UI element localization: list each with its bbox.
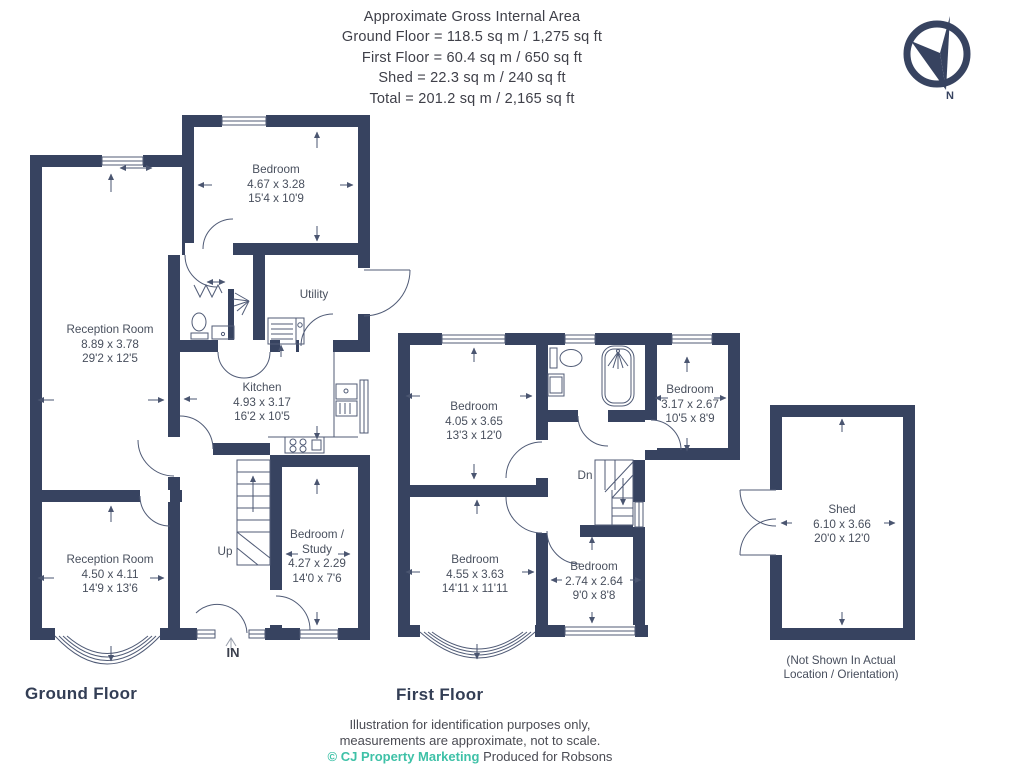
- stairs-dn-label: Dn: [578, 469, 593, 482]
- footer: Illustration for identification purposes…: [270, 717, 670, 764]
- area-summary-title: Approximate Gross Internal Area: [272, 7, 672, 27]
- shower-icon: [608, 350, 628, 370]
- compass-north-label: N: [946, 90, 954, 102]
- credit-text: Produced for Robsons: [483, 749, 612, 764]
- area-summary-first: First Floor = 60.4 sq m / 650 sq ft: [272, 48, 672, 68]
- first-floor-title: First Floor: [396, 685, 483, 705]
- ground-floor-title: Ground Floor: [25, 684, 137, 704]
- room-label-bedroom-gf: Bedroom 4.67 x 3.28 15'4 x 10'9: [247, 163, 305, 207]
- shed-doors: [740, 490, 776, 555]
- ground-floor-stairs: [237, 460, 270, 565]
- room-label-bedroom-study: Bedroom / Study 4.27 x 2.29 14'0 x 7'6: [277, 528, 357, 586]
- area-summary-shed: Shed = 22.3 sq m / 240 sq ft: [272, 68, 672, 88]
- ground-floor-bay-window: [55, 636, 160, 664]
- credit-line: © CJ Property Marketing Produced for Rob…: [270, 749, 670, 765]
- first-floor-stairs: [595, 460, 633, 525]
- first-floor-fixtures: [548, 346, 634, 406]
- compass-icon: [907, 16, 967, 90]
- room-label-utility: Utility: [300, 288, 329, 303]
- entrance-in-label: IN: [227, 645, 240, 660]
- hob-icon: [285, 437, 324, 453]
- disclaimer-line-1: Illustration for identification purposes…: [270, 717, 670, 733]
- floorplan-drawing: [0, 0, 1024, 768]
- area-summary: Approximate Gross Internal Area Ground F…: [272, 7, 672, 109]
- basin-icon: [548, 374, 564, 396]
- disclaimer-line-2: measurements are approximate, not to sca…: [270, 733, 670, 749]
- toilet-icon: [550, 348, 582, 368]
- radiator-icon: [194, 285, 222, 297]
- area-summary-ground: Ground Floor = 118.5 sq m / 1,275 sq ft: [272, 27, 672, 47]
- area-summary-total: Total = 201.2 sq m / 2,165 sq ft: [272, 89, 672, 109]
- shower-icon: [233, 293, 249, 315]
- credit-brand: © CJ Property Marketing: [328, 749, 480, 764]
- room-label-shed: Shed 6.10 x 3.66 20'0 x 12'0: [813, 503, 871, 547]
- room-label-reception-top: Reception Room 8.89 x 3.78 29'2 x 12'5: [66, 323, 153, 367]
- sink-icon: [336, 384, 357, 416]
- room-label-reception-bottom: Reception Room 4.50 x 4.11 14'9 x 13'6: [66, 553, 153, 597]
- shed-note: (Not Shown In Actual Location / Orientat…: [741, 654, 941, 682]
- stairs-up-label: Up: [218, 545, 233, 558]
- floorplan-page: Approximate Gross Internal Area Ground F…: [0, 0, 1024, 768]
- room-label-bedroom-ff-bottom-right: Bedroom 2.74 x 2.64 9'0 x 8'8: [565, 560, 623, 604]
- room-label-kitchen: Kitchen 4.93 x 3.17 16'2 x 10'5: [233, 381, 291, 425]
- room-label-bedroom-ff-bottom-left: Bedroom 4.55 x 3.63 14'11 x 11'11: [442, 553, 508, 597]
- toilet-icon: [192, 313, 206, 331]
- room-label-bedroom-ff-top-right: Bedroom 3.17 x 2.67 10'5 x 8'9: [661, 383, 719, 427]
- room-label-bedroom-ff-top-left: Bedroom 4.05 x 3.65 13'3 x 12'0: [445, 400, 503, 444]
